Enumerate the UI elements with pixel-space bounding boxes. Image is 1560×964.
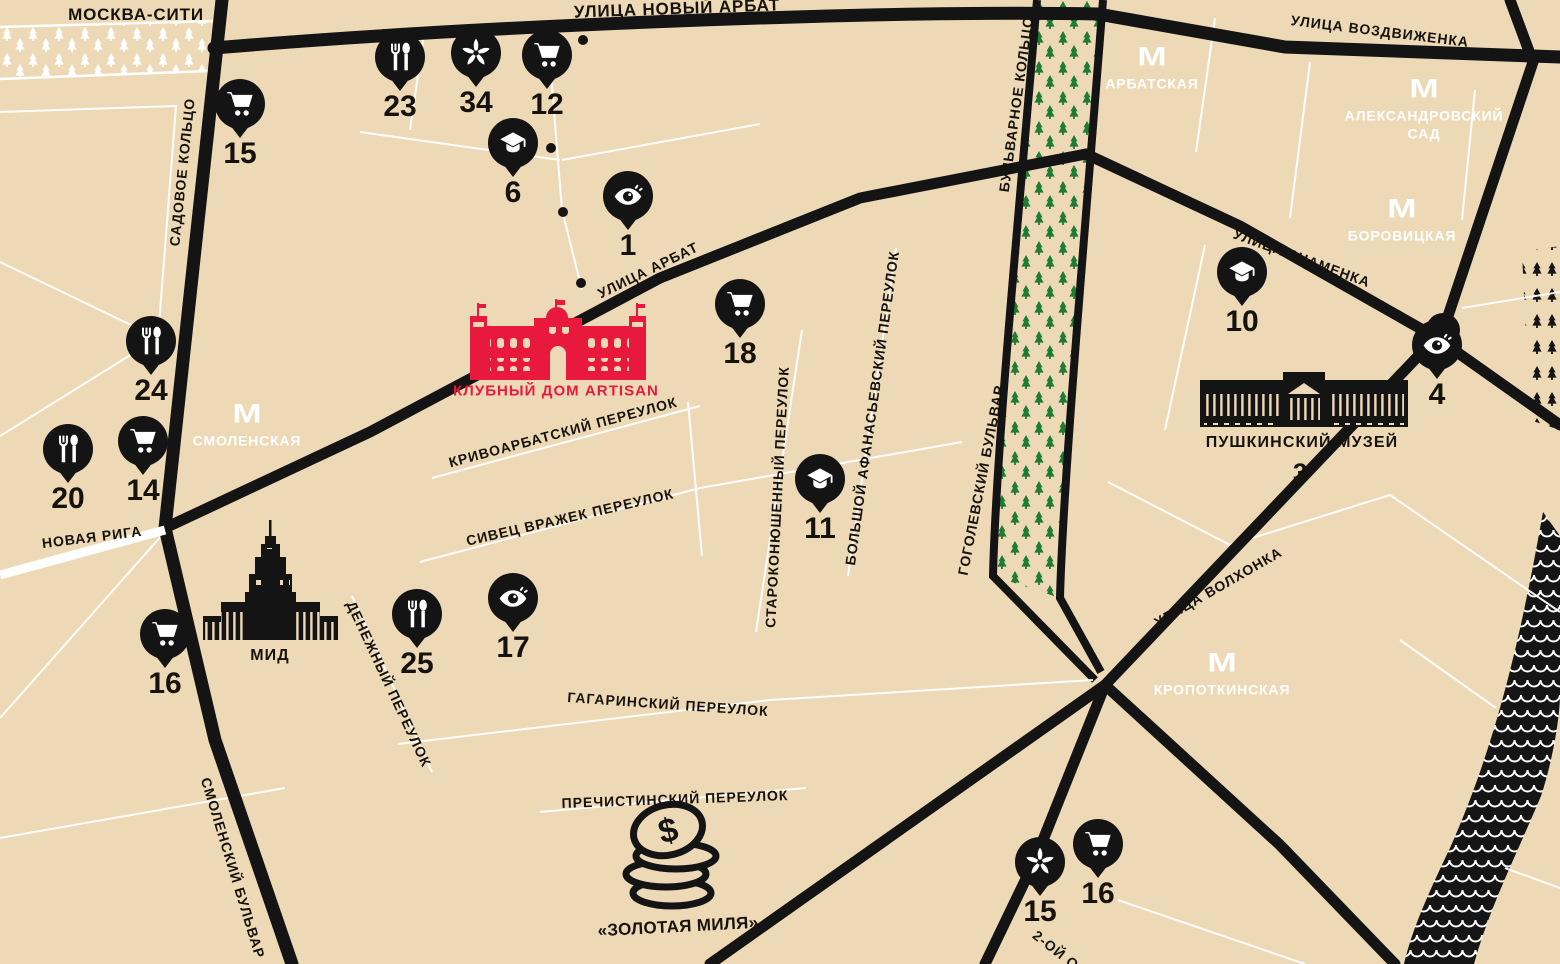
city-map: $ МОСКВА-СИТИ УЛИЦА НОВЫЙ АРБАТ УЛИЦА ВО…	[0, 0, 1560, 964]
shopping-cart-icon	[715, 279, 765, 329]
mid-building[interactable]	[203, 520, 338, 640]
graduation-cap-icon	[795, 454, 845, 504]
coins-icon: $	[626, 797, 716, 906]
shopping-cart-icon	[140, 609, 190, 659]
graduation-cap-icon	[488, 118, 538, 168]
eye-icon	[603, 171, 653, 221]
metro-m-icon: М	[1321, 71, 1527, 106]
restaurant-icon	[43, 424, 93, 474]
shopping-cart-icon	[1073, 819, 1123, 869]
flower-icon	[1015, 837, 1065, 887]
restaurant-icon	[126, 316, 176, 366]
mid-label: МИД	[250, 647, 290, 665]
shopping-cart-icon	[522, 30, 572, 80]
metro-arbatskaya: М АРБАТСКАЯ	[1105, 39, 1198, 92]
district-label-moskva-city: МОСКВА-СИТИ	[68, 5, 204, 25]
metro-smolenskaya: М СМОЛЕНСКАЯ	[193, 396, 302, 449]
metro-m-icon: М	[176, 396, 317, 431]
novinsky-trees-band	[0, 21, 213, 79]
metro-kropotkinskaya: М КРОПОТКИНСКАЯ	[1154, 645, 1291, 698]
shopping-cart-icon	[215, 79, 265, 129]
pushkin-museum-number: 3	[1293, 458, 1309, 489]
eye-icon	[1412, 320, 1462, 370]
artisan-label: КЛУБНЫЙ ДОМ ARTISAN	[453, 383, 659, 400]
metro-alexandrovsky-sad: М АЛЕКСАНДРОВСКИЙ САД	[1345, 71, 1504, 142]
artisan-building[interactable]	[470, 299, 646, 380]
shopping-cart-icon	[118, 416, 168, 466]
flower-icon	[451, 28, 501, 78]
metro-m-icon: М	[1133, 645, 1311, 680]
metro-m-icon: М	[1331, 191, 1472, 226]
metro-m-icon: М	[1091, 39, 1212, 74]
pushkin-museum-building[interactable]	[1200, 372, 1408, 427]
graduation-cap-icon	[1217, 247, 1267, 297]
metro-borovitskaya: М БОРОВИЦКАЯ	[1348, 191, 1457, 244]
road-soymonovsky	[1105, 685, 1395, 964]
restaurant-icon	[375, 32, 425, 82]
restaurant-icon	[392, 589, 442, 639]
eye-icon	[488, 573, 538, 623]
moskva-river	[1404, 512, 1560, 964]
pushkin-museum-label: ПУШКИНСКИЙ МУЗЕЙ	[1206, 434, 1399, 452]
